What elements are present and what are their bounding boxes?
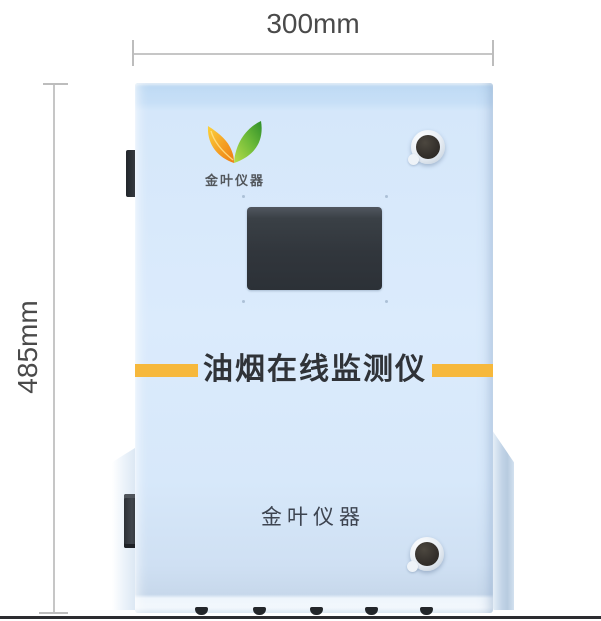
right-mount-bracket [492, 430, 514, 610]
screw-dot [385, 195, 388, 198]
brand-logo: 金叶仪器 [170, 120, 300, 189]
logo-caption: 金叶仪器 [170, 170, 300, 189]
cam-lock-knob-core [415, 542, 439, 566]
device-cabinet: 金叶仪器 油烟在线监测仪 金叶仪器 [135, 83, 493, 613]
height-dimension-label: 485mm [13, 287, 43, 407]
height-dimension-line [53, 83, 55, 613]
width-dimension-line [133, 53, 493, 55]
brand-text: 金叶仪器 [193, 503, 433, 533]
dual-leaf-logo-icon [170, 120, 300, 166]
screw-dot [242, 195, 245, 198]
screw-dot [242, 300, 245, 303]
cam-lock-knob-core [416, 135, 440, 159]
device-foot [310, 607, 323, 615]
cam-lock-knob-top [411, 130, 445, 164]
banner-title: 油烟在线监测仪 [195, 351, 435, 389]
device-foot [253, 607, 266, 615]
product-dimension-diagram: 300mm 485mm [0, 0, 601, 621]
screw-dot [385, 300, 388, 303]
width-dimension-label: 300mm [133, 8, 493, 40]
width-dimension-tick-right [492, 40, 494, 66]
ground-line [0, 616, 601, 619]
width-dimension-tick-left [132, 40, 134, 66]
accent-bar-right [432, 364, 493, 377]
height-dimension-tick-top [43, 83, 68, 85]
device-foot [420, 607, 433, 615]
cam-lock-knob-bottom [410, 537, 444, 571]
accent-bar-left [135, 364, 198, 377]
height-dimension-tick-bottom [39, 612, 68, 614]
device-foot [195, 607, 208, 615]
device-foot [365, 607, 378, 615]
display-screen [247, 207, 382, 290]
